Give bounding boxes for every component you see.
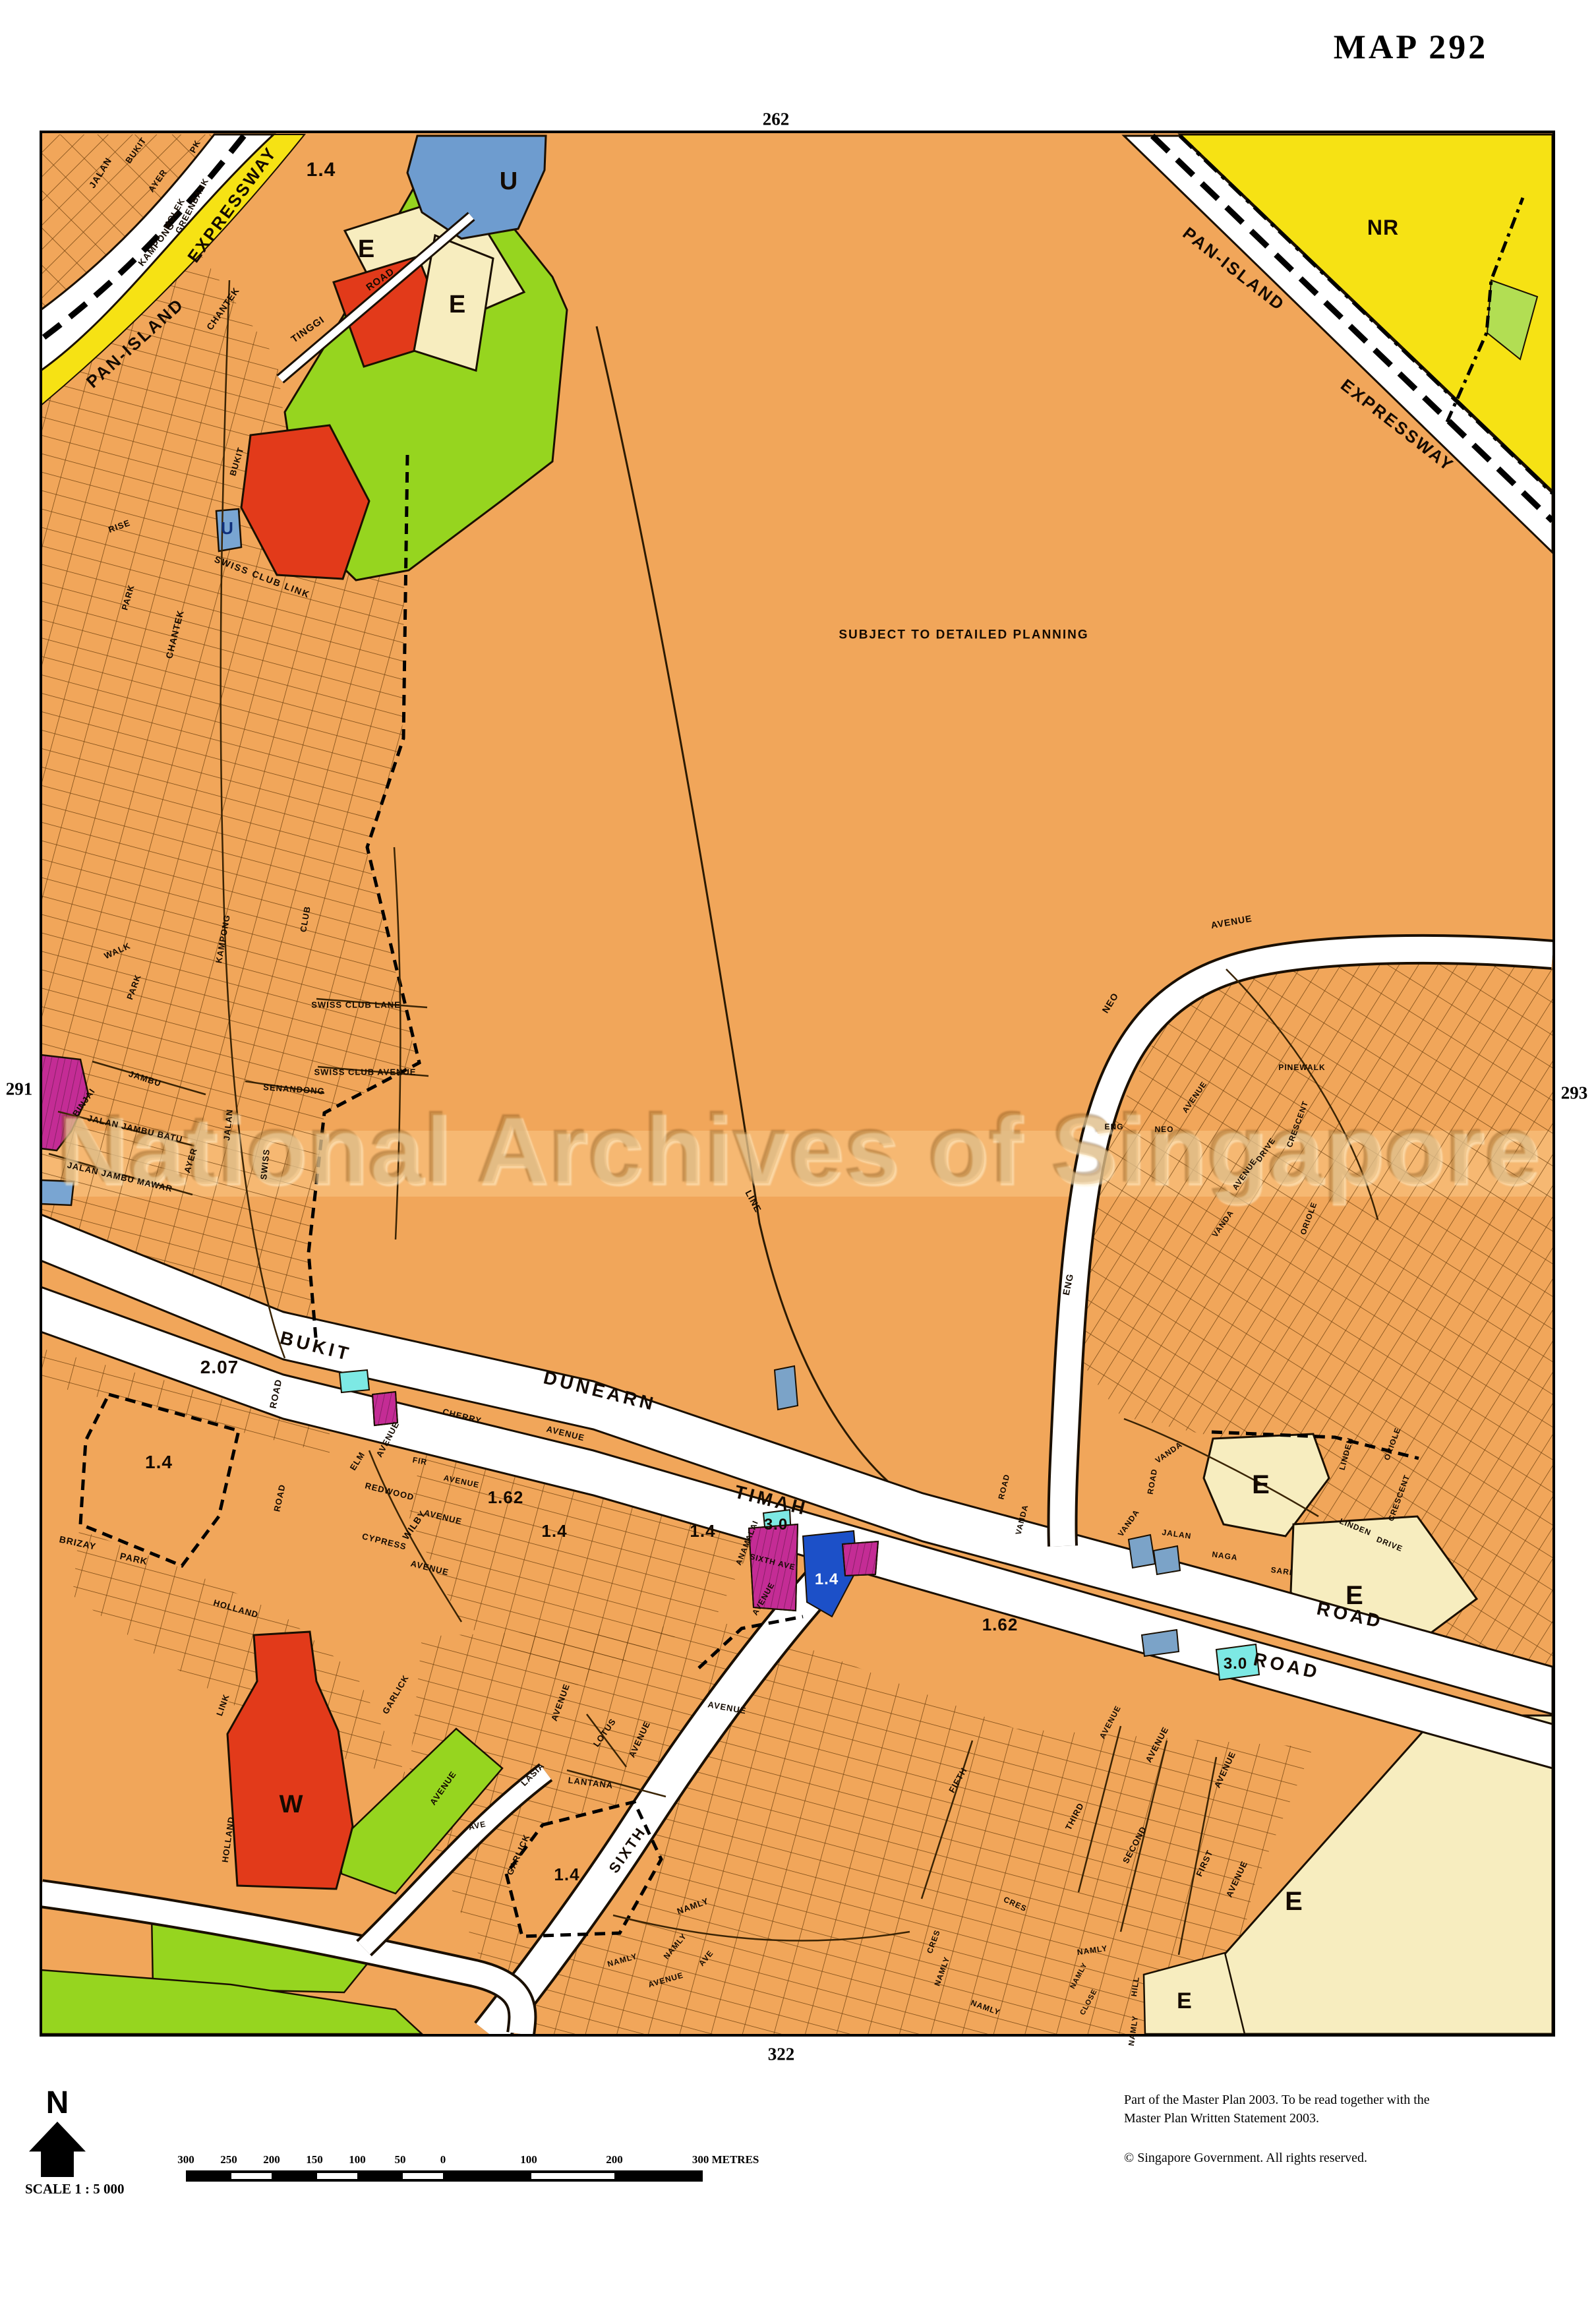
scale-bar xyxy=(186,2170,703,2182)
zone-label-e: E xyxy=(1345,1582,1364,1609)
zone-label-u: U xyxy=(221,520,234,537)
density-label: 3.0 xyxy=(764,1517,788,1533)
scale-segment xyxy=(316,2172,359,2180)
zone-label-e: E xyxy=(1285,1888,1303,1915)
scale-segment xyxy=(187,2172,230,2180)
zone-label-e: E xyxy=(1252,1472,1270,1498)
zone-label-u: U xyxy=(500,169,518,194)
road-label: ENG xyxy=(1104,1123,1123,1131)
density-label: 1.4 xyxy=(815,1572,839,1588)
zone-label-e: E xyxy=(1177,1990,1193,2012)
density-label: 1.4 xyxy=(554,1866,579,1883)
scale-label: SCALE 1 : 5 000 xyxy=(25,2181,125,2197)
zone-label-e: E xyxy=(358,237,375,262)
density-label: 1.62 xyxy=(488,1489,524,1506)
zone-label-w: W xyxy=(280,1792,304,1817)
density-label: 1.4 xyxy=(690,1522,715,1539)
steel-parcel xyxy=(775,1366,798,1410)
scale-tick: 100 xyxy=(520,2153,537,2166)
adjacent-map-top: 262 xyxy=(763,109,790,130)
copyright-line: © Singapore Government. All rights reser… xyxy=(1124,2151,1367,2166)
scale-segment xyxy=(444,2172,530,2180)
north-label: N xyxy=(46,2087,69,2119)
adjacent-map-bottom: 322 xyxy=(768,2044,795,2065)
scale-segment xyxy=(273,2172,316,2180)
statement-line-1: Part of the Master Plan 2003. To be read… xyxy=(1124,2093,1430,2108)
road-label: NEO xyxy=(1154,1125,1173,1133)
density-label: 3.0 xyxy=(1224,1656,1247,1672)
scale-tick: 150 xyxy=(306,2153,323,2166)
road-label: FIR xyxy=(412,1456,428,1466)
adjacent-map-left: 291 xyxy=(6,1079,33,1100)
scale-tick: 200 xyxy=(606,2153,623,2166)
scale-tick: 200 xyxy=(263,2153,280,2166)
adjacent-map-right: 293 xyxy=(1561,1083,1588,1104)
scale-segment xyxy=(616,2172,701,2180)
road-label: PINEWALK xyxy=(1278,1063,1325,1071)
zone-label-e: E xyxy=(449,292,466,317)
road-label: SWISS CLUB AVENUE xyxy=(314,1068,417,1077)
density-label: 1.4 xyxy=(307,160,336,180)
scale-segment xyxy=(530,2172,616,2180)
archives-watermark: National Archives of Singapore xyxy=(57,1094,1541,1207)
density-label: 1.4 xyxy=(541,1522,567,1539)
scale-tick: 0 xyxy=(440,2153,446,2166)
planning-note: SUBJECT TO DETAILED PLANNING xyxy=(839,629,1088,641)
scale-tick: 50 xyxy=(395,2153,406,2166)
map-title: MAP 292 xyxy=(1334,28,1489,67)
scale-segment xyxy=(230,2172,273,2180)
scale-tick: 100 xyxy=(349,2153,366,2166)
scale-tick: 300 xyxy=(177,2153,194,2166)
zone-label-nr: NR xyxy=(1367,217,1399,238)
density-label: 1.4 xyxy=(145,1453,173,1472)
road-label: SWISS CLUB LANE xyxy=(311,1001,401,1009)
statement-line-2: Master Plan Written Statement 2003. xyxy=(1124,2111,1319,2126)
density-label: 1.62 xyxy=(982,1616,1019,1633)
density-label: 2.07 xyxy=(200,1358,239,1377)
scanned-map-page: MAP 292 262 322 291 293 National Archive… xyxy=(0,0,1596,2297)
scale-tick: 250 xyxy=(220,2153,237,2166)
scale-segment xyxy=(359,2172,401,2180)
scale-tick: 300 METRES xyxy=(692,2153,759,2166)
scale-segment xyxy=(401,2172,444,2180)
